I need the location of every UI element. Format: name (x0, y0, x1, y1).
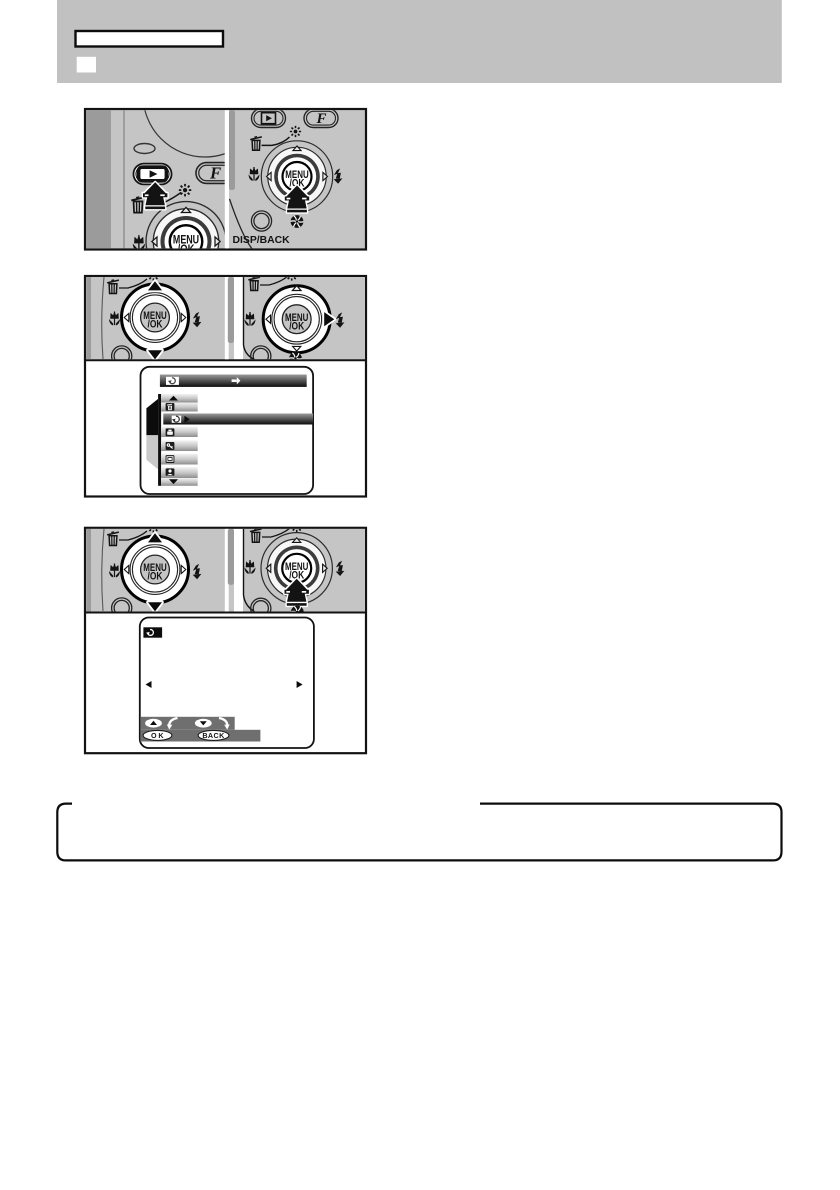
svg-text:OK: OK (151, 731, 165, 740)
svg-text:DISP/BACK: DISP/BACK (233, 235, 291, 246)
svg-text:BACK: BACK (202, 731, 225, 740)
